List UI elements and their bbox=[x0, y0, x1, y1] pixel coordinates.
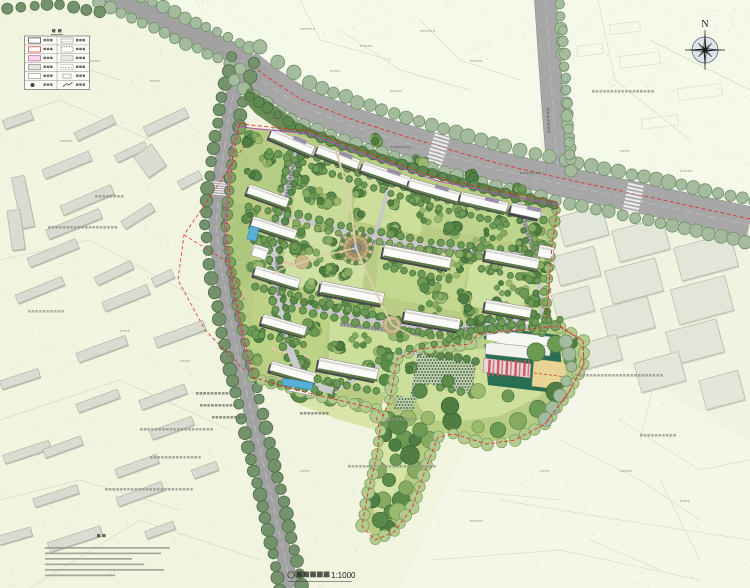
svg-text:1:1000: 1:1000 bbox=[331, 571, 356, 580]
svg-text:N: N bbox=[701, 19, 708, 30]
